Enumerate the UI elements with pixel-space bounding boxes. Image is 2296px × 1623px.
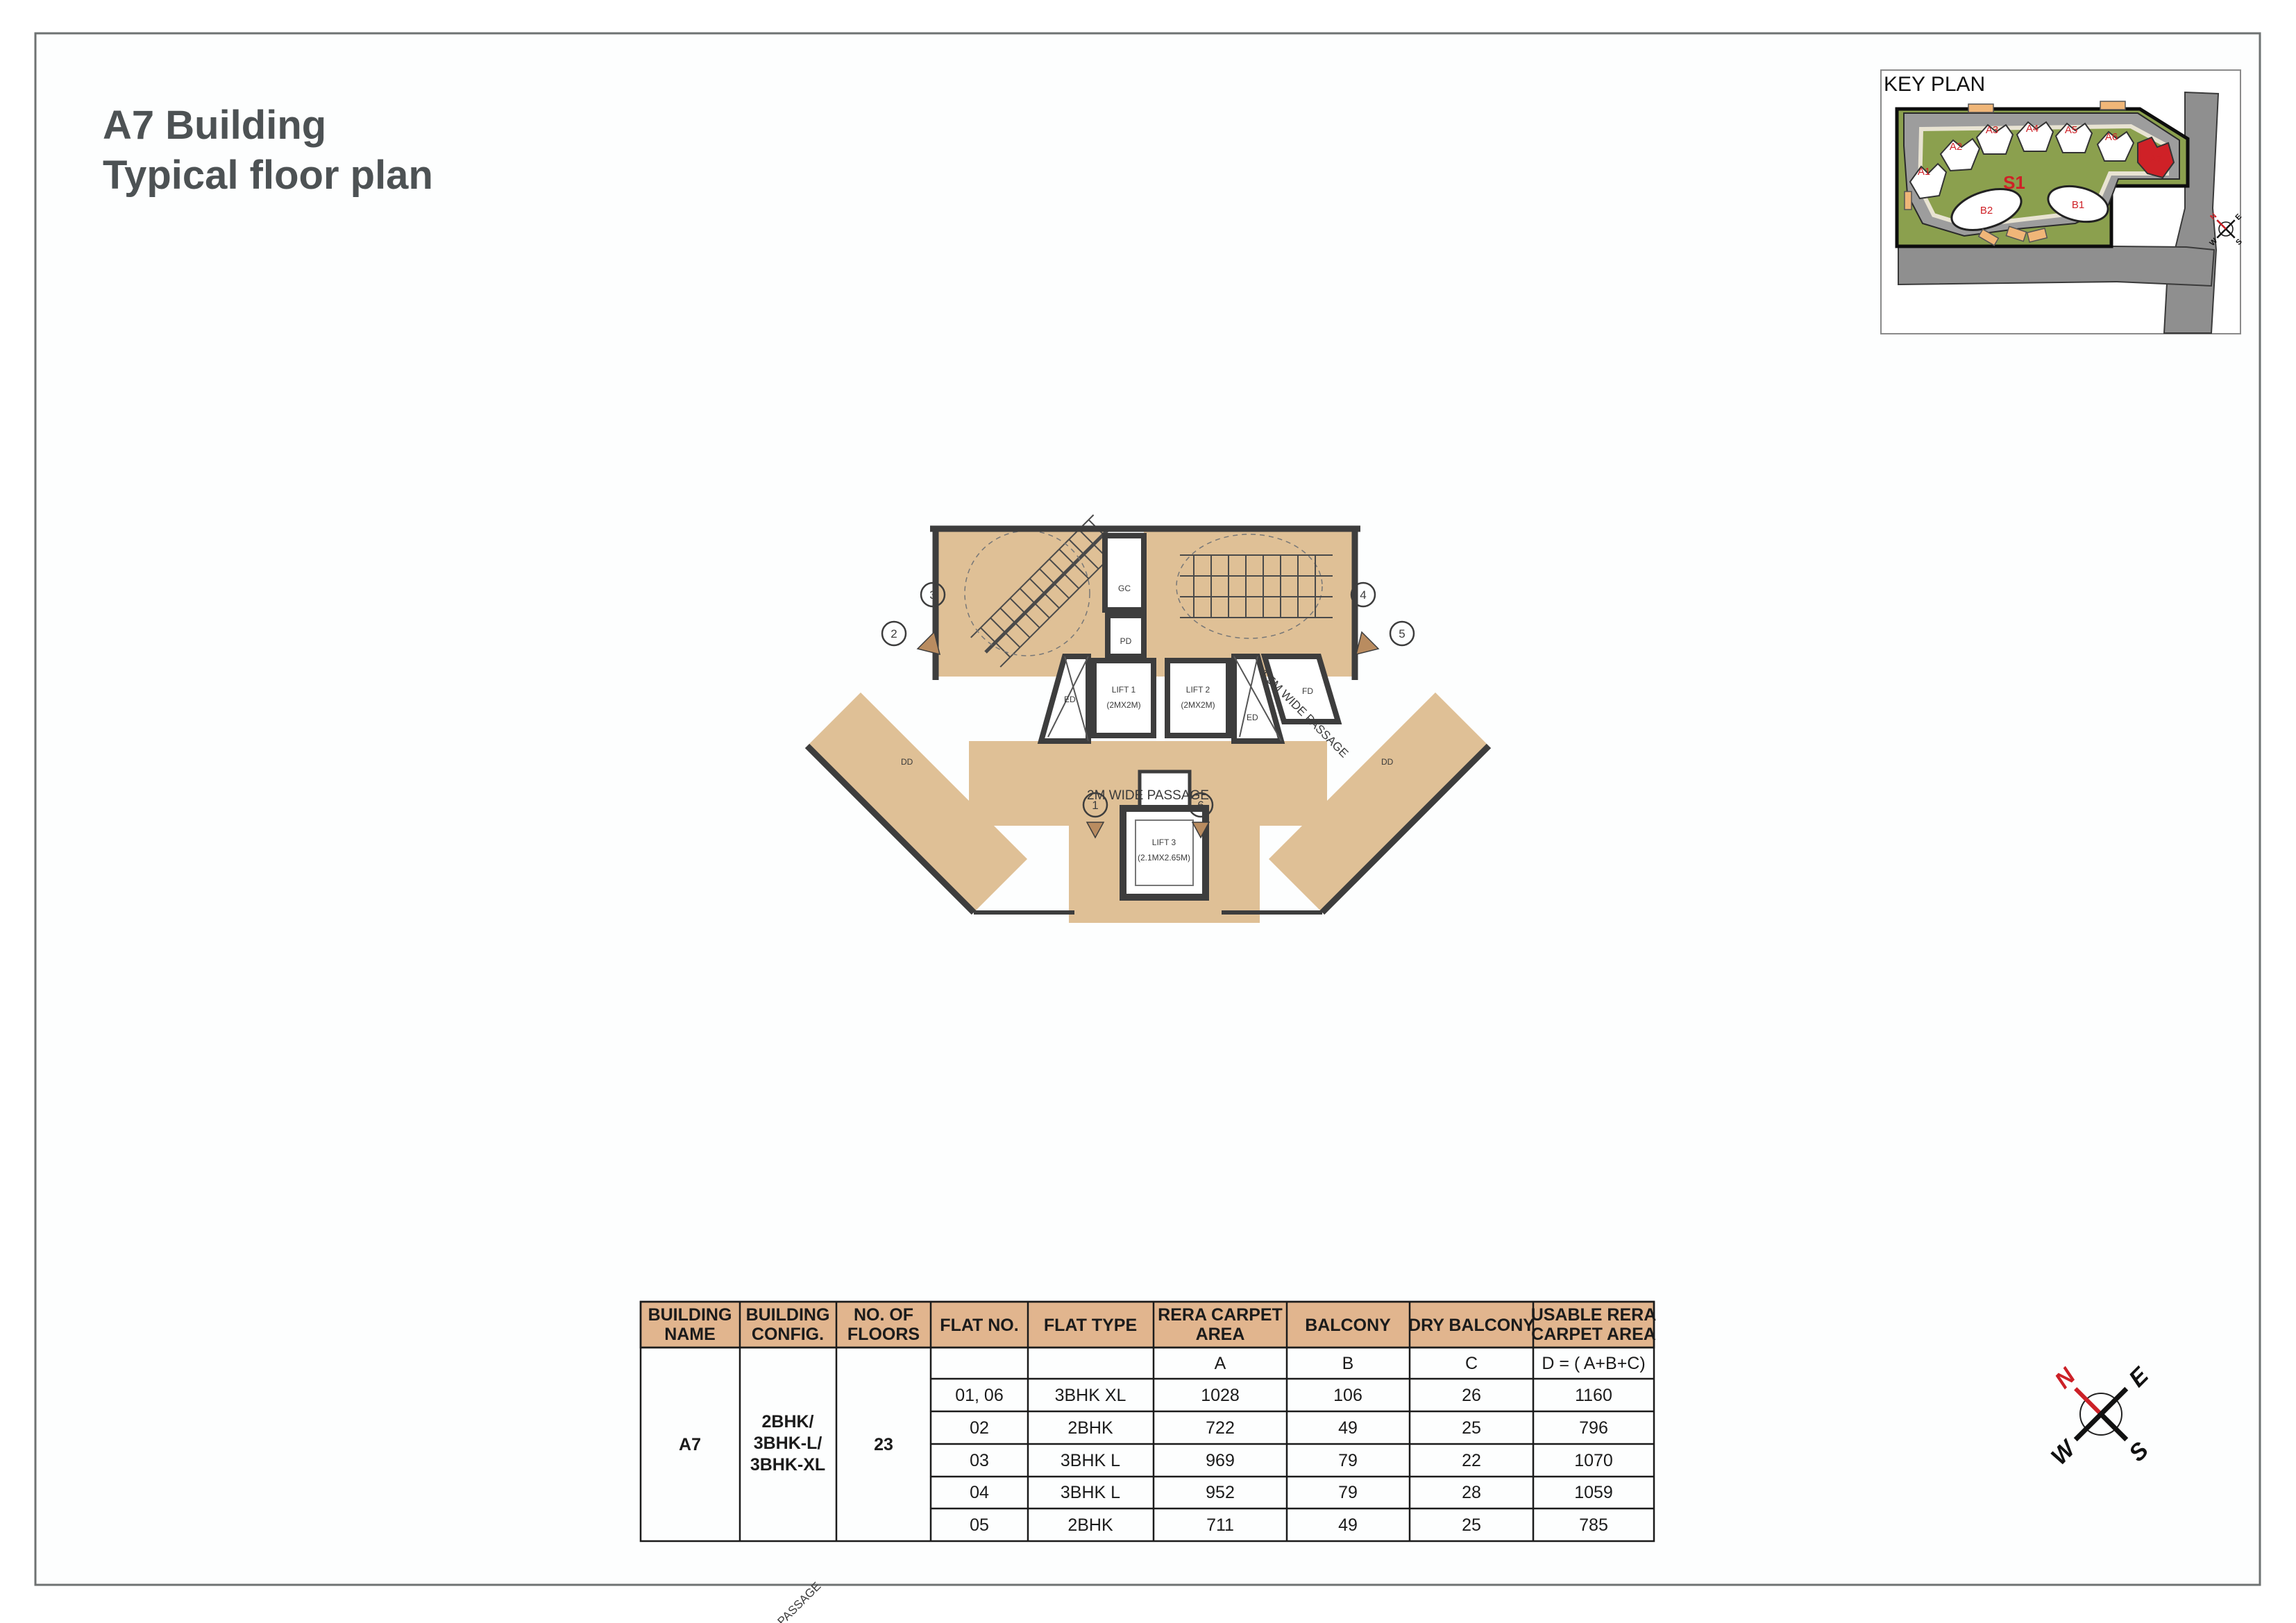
svg-text:A7: A7	[2150, 153, 2162, 165]
svg-text:B2: B2	[1980, 205, 1993, 216]
svg-text:NO. OF: NO. OF	[854, 1305, 913, 1325]
svg-text:3BHK XL: 3BHK XL	[1055, 1386, 1126, 1405]
svg-text:A1: A1	[1918, 166, 1930, 178]
svg-text:KEY PLAN: KEY PLAN	[1884, 73, 1985, 96]
svg-text:25: 25	[1462, 1515, 1481, 1535]
svg-text:4: 4	[1360, 588, 1366, 602]
svg-text:2BHK: 2BHK	[1067, 1515, 1113, 1535]
svg-text:2BHK/: 2BHK/	[761, 1412, 813, 1431]
svg-text:23: 23	[874, 1435, 893, 1454]
svg-text:49: 49	[1338, 1418, 1358, 1438]
svg-text:CONFIG.: CONFIG.	[752, 1325, 824, 1344]
svg-text:04: 04	[970, 1483, 989, 1502]
svg-text:3BHK-L/: 3BHK-L/	[754, 1434, 822, 1453]
svg-text:PD: PD	[1120, 636, 1132, 646]
svg-text:3: 3	[929, 588, 936, 602]
svg-text:02: 02	[970, 1418, 989, 1438]
svg-text:2: 2	[890, 627, 897, 640]
svg-text:A2: A2	[1950, 141, 1962, 153]
svg-text:1070: 1070	[1574, 1451, 1613, 1470]
svg-text:79: 79	[1338, 1483, 1358, 1502]
svg-text:01, 06: 01, 06	[955, 1386, 1004, 1405]
svg-text:(2MX2M): (2MX2M)	[1181, 700, 1215, 710]
svg-text:952: 952	[1206, 1483, 1235, 1502]
svg-text:05: 05	[970, 1515, 989, 1535]
svg-text:711: 711	[1206, 1515, 1234, 1535]
svg-text:(2MX2M): (2MX2M)	[1106, 700, 1140, 710]
svg-text:3BHK-XL: 3BHK-XL	[750, 1455, 825, 1475]
svg-text:22: 22	[1462, 1451, 1481, 1470]
svg-text:B: B	[1342, 1354, 1354, 1373]
svg-text:B1: B1	[2072, 199, 2084, 211]
svg-text:D = ( A+B+C): D = ( A+B+C)	[1542, 1354, 1645, 1373]
svg-text:DRY BALCONY: DRY BALCONY	[1408, 1316, 1535, 1335]
svg-text:(2.1MX2.65M): (2.1MX2.65M)	[1138, 853, 1190, 863]
svg-text:969: 969	[1206, 1451, 1235, 1470]
svg-text:LIFT 3: LIFT 3	[1152, 838, 1176, 847]
svg-text:RERA CARPET: RERA CARPET	[1158, 1305, 1283, 1325]
svg-text:GC: GC	[1118, 584, 1131, 593]
svg-text:25: 25	[1462, 1418, 1481, 1438]
svg-text:C: C	[1465, 1354, 1478, 1373]
svg-text:3BHK L: 3BHK L	[1061, 1451, 1120, 1470]
svg-text:03: 03	[970, 1451, 989, 1470]
svg-text:LIFT 2: LIFT 2	[1186, 685, 1210, 695]
svg-text:NAME: NAME	[664, 1325, 716, 1344]
svg-text:DD: DD	[1381, 757, 1394, 767]
svg-text:785: 785	[1579, 1515, 1608, 1535]
svg-text:A: A	[1215, 1354, 1226, 1373]
svg-text:796: 796	[1579, 1418, 1608, 1438]
svg-text:A5: A5	[2065, 124, 2077, 136]
svg-text:1028: 1028	[1201, 1386, 1240, 1405]
svg-text:BUILDING: BUILDING	[648, 1305, 732, 1325]
svg-text:A4: A4	[2026, 123, 2038, 135]
svg-text:3BHK L: 3BHK L	[1061, 1483, 1120, 1502]
svg-text:1: 1	[1092, 799, 1098, 812]
svg-text:A7: A7	[679, 1435, 701, 1454]
svg-text:2M WIDE PASSAGE: 2M WIDE PASSAGE	[1087, 788, 1209, 803]
svg-text:FLOORS: FLOORS	[847, 1325, 920, 1344]
svg-text:49: 49	[1338, 1515, 1358, 1535]
svg-text:DD: DD	[901, 757, 913, 767]
svg-text:26: 26	[1462, 1386, 1481, 1405]
svg-text:LIFT 1: LIFT 1	[1112, 685, 1136, 695]
svg-text:A6: A6	[2105, 131, 2118, 143]
svg-text:2BHK: 2BHK	[1067, 1418, 1113, 1438]
svg-text:A3: A3	[1986, 124, 1998, 136]
svg-text:S1: S1	[2003, 172, 2025, 193]
svg-text:A7 Building: A7 Building	[103, 103, 326, 148]
svg-text:Typical floor plan: Typical floor plan	[103, 153, 433, 198]
svg-text:79: 79	[1338, 1451, 1358, 1470]
svg-text:28: 28	[1462, 1483, 1481, 1502]
svg-text:ED: ED	[1247, 713, 1258, 722]
svg-text:106: 106	[1333, 1386, 1362, 1405]
svg-text:CARPET AREA: CARPET AREA	[1531, 1325, 1656, 1344]
svg-text:BUILDING: BUILDING	[746, 1305, 830, 1325]
svg-text:722: 722	[1206, 1418, 1235, 1438]
svg-text:6: 6	[1197, 799, 1204, 812]
svg-text:FLAT NO.: FLAT NO.	[940, 1316, 1018, 1335]
svg-text:ED: ED	[1064, 695, 1076, 704]
svg-text:BALCONY: BALCONY	[1305, 1316, 1391, 1335]
svg-text:FD: FD	[1302, 686, 1313, 696]
svg-text:1160: 1160	[1575, 1386, 1612, 1405]
svg-text:FLAT TYPE: FLAT TYPE	[1044, 1316, 1137, 1335]
svg-text:1059: 1059	[1574, 1483, 1613, 1502]
svg-text:AREA: AREA	[1196, 1325, 1245, 1344]
svg-text:5: 5	[1399, 627, 1405, 640]
svg-text:USABLE RERA: USABLE RERA	[1531, 1305, 1657, 1325]
